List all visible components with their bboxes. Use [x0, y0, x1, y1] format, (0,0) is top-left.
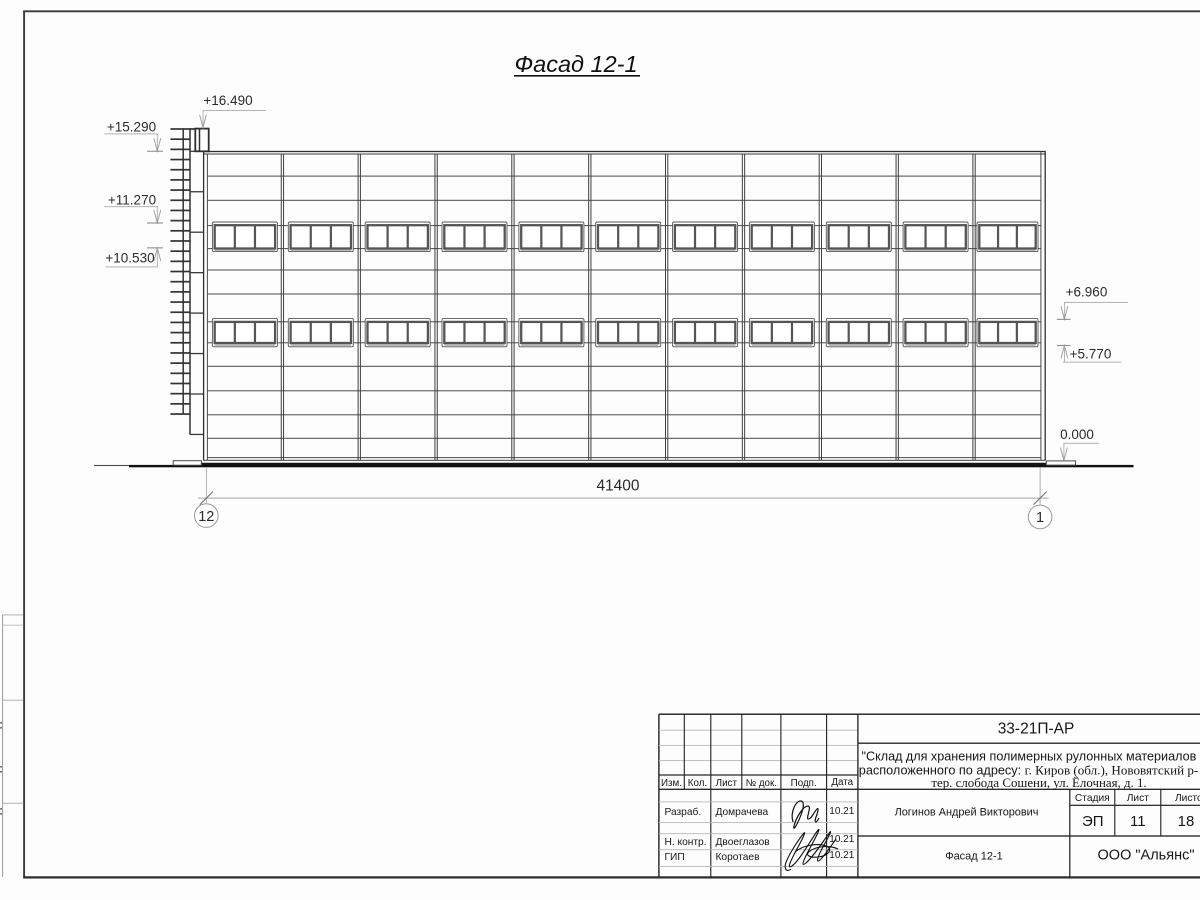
- svg-text:+15.290: +15.290: [107, 120, 156, 135]
- svg-text:33-21П-АР: 33-21П-АР: [998, 721, 1075, 738]
- svg-text:Подп.: Подп.: [791, 778, 817, 789]
- svg-text:10.21: 10.21: [829, 850, 854, 861]
- svg-text:Фасад 12-1: Фасад 12-1: [945, 850, 1003, 862]
- svg-text:1: 1: [1036, 510, 1044, 526]
- svg-text:Коротаев: Коротаев: [716, 852, 760, 863]
- svg-text:Логинов Андрей Викторович: Логинов Андрей Викторович: [895, 806, 1039, 818]
- svg-text:Стадия: Стадия: [1075, 793, 1110, 804]
- svg-text:41400: 41400: [596, 477, 639, 494]
- svg-text:Лист: Лист: [1127, 793, 1149, 804]
- svg-text:10.21: 10.21: [829, 806, 854, 817]
- svg-text:Изм.: Изм.: [661, 778, 682, 789]
- svg-text:12: 12: [198, 509, 214, 525]
- svg-text:Листов: Листов: [1175, 793, 1200, 804]
- svg-text:Кол.: Кол.: [688, 778, 707, 789]
- svg-text:Фасад 12-1: Фасад 12-1: [514, 51, 637, 77]
- svg-text:+6.960: +6.960: [1066, 285, 1108, 300]
- svg-text:"Склад для хранения полимерных: "Склад для хранения полимерных рулонных …: [862, 750, 1197, 764]
- svg-text:ЭП: ЭП: [1082, 813, 1104, 830]
- svg-text:ГИП: ГИП: [665, 852, 685, 863]
- svg-text:0.000: 0.000: [1060, 427, 1094, 442]
- svg-text:Двоеглазов: Двоеглазов: [716, 837, 770, 848]
- svg-text:Дата: Дата: [831, 777, 853, 788]
- svg-text:+16.490: +16.490: [203, 93, 252, 108]
- svg-text:Лист: Лист: [716, 778, 738, 789]
- svg-text:11: 11: [1130, 813, 1146, 830]
- svg-text:+11.270: +11.270: [108, 193, 156, 208]
- svg-text:Разраб.: Разраб.: [665, 806, 702, 818]
- svg-text:+5.770: +5.770: [1070, 347, 1112, 362]
- svg-text:Домрачева: Домрачева: [716, 807, 769, 818]
- svg-text:18: 18: [1178, 813, 1195, 830]
- svg-text:+10.530: +10.530: [105, 251, 154, 266]
- svg-text:№ док.: № док.: [746, 778, 777, 789]
- svg-text:Н. контр.: Н. контр.: [665, 837, 707, 848]
- svg-text:тер. слобода Сошени, ул. Ёлочн: тер. слобода Сошени, ул. Ёлочная, д. 1.: [931, 776, 1146, 790]
- svg-text:ООО "Альянс": ООО "Альянс": [1098, 847, 1195, 863]
